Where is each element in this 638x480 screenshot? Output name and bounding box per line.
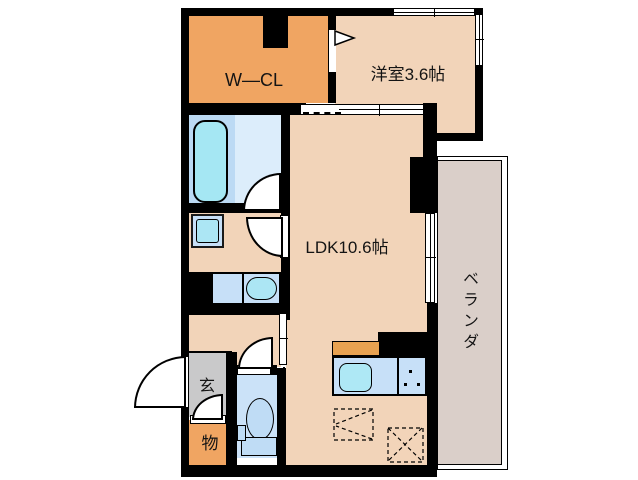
opening-arrow-icon (333, 29, 357, 47)
window-icon (393, 8, 475, 16)
toilet-flush-icon (237, 425, 246, 441)
wall-shaft (410, 157, 437, 213)
wall-wcl-pillar (263, 15, 288, 48)
window-icon (475, 14, 483, 66)
label-genkan: 玄 (193, 372, 221, 396)
kitchen-sink-icon (339, 363, 372, 392)
appliance-space-x-icon (388, 428, 423, 462)
toilet-tank-icon (241, 437, 277, 456)
stove-burners-icon (409, 370, 412, 373)
wall-ldk-right-upper (423, 103, 437, 158)
label-veranda: ベランダ (455, 256, 481, 368)
appliance-space-marks (330, 405, 430, 467)
wall-genkan-toilet (226, 352, 237, 465)
veranda-sliding-window-icon (425, 213, 435, 303)
washbasin-bowl-icon (196, 219, 219, 243)
stove-burners-icon (417, 383, 420, 386)
label-storage: 物 (193, 428, 227, 454)
sliding-door-track-dashes (283, 367, 285, 415)
floor-plan: W—CL 洋室3.6帖 LDK10.6帖 玄 物 ベランダ (0, 0, 638, 480)
sliding-door-icon (279, 313, 287, 365)
sliding-door-icon (300, 104, 424, 115)
washing-machine-drain-icon (246, 277, 277, 300)
kitchen-counter (332, 341, 380, 356)
label-western-room: 洋室3.6帖 (352, 58, 464, 86)
label-ldk: LDK10.6帖 (290, 232, 404, 258)
entrance-door-swing-icon (134, 356, 186, 408)
refrigerator-space-icon (334, 409, 373, 440)
wall-pan-block (188, 272, 211, 305)
bathtub-icon (193, 120, 228, 203)
wall-hall-top (181, 305, 287, 315)
wall-western-bottom (430, 133, 483, 141)
wall-kitchen-back (378, 332, 428, 358)
toilet-bowl-icon (246, 398, 274, 440)
label-wcl: W—CL (199, 66, 309, 94)
stove-burners-icon (404, 383, 407, 386)
